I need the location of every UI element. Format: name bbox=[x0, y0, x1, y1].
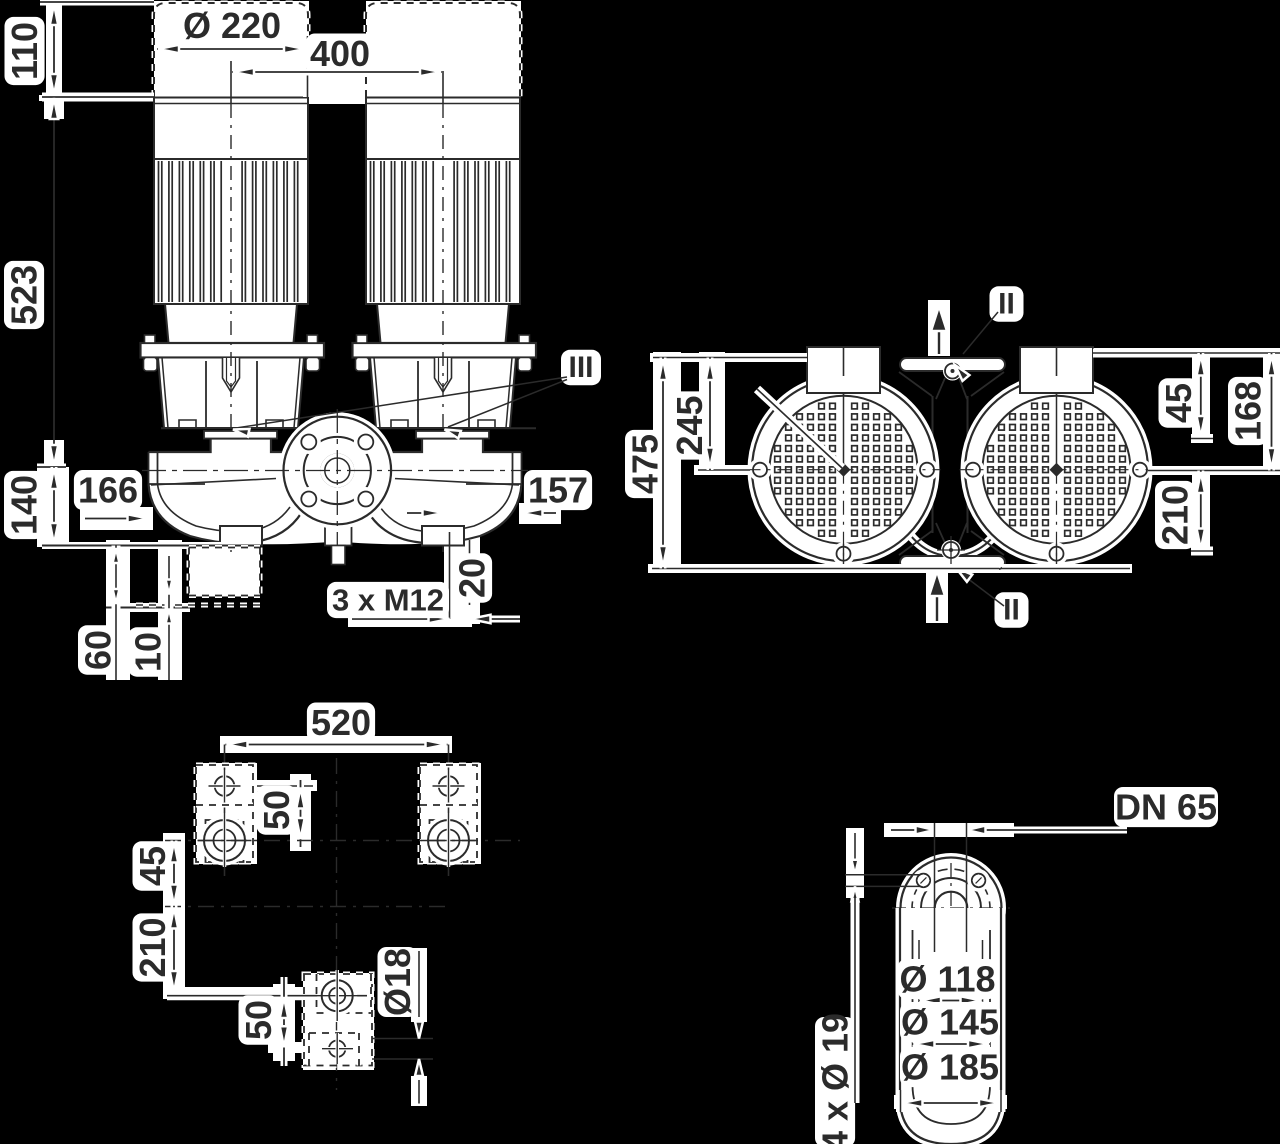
svg-text:140: 140 bbox=[4, 475, 45, 535]
svg-text:20: 20 bbox=[452, 558, 493, 598]
svg-text:Ø18: Ø18 bbox=[377, 948, 418, 1016]
svg-text:475: 475 bbox=[625, 434, 666, 494]
svg-text:Ø 118: Ø 118 bbox=[899, 959, 995, 1000]
svg-text:II: II bbox=[1003, 594, 1020, 627]
svg-text:45: 45 bbox=[1158, 383, 1199, 423]
svg-text:DN 65: DN 65 bbox=[1115, 787, 1217, 828]
svg-text:520: 520 bbox=[311, 702, 371, 743]
svg-text:4 x Ø 19: 4 x Ø 19 bbox=[815, 1013, 856, 1144]
svg-text:166: 166 bbox=[78, 470, 138, 511]
svg-text:III: III bbox=[568, 351, 593, 384]
svg-text:168: 168 bbox=[1228, 381, 1269, 441]
svg-text:10: 10 bbox=[128, 632, 169, 672]
svg-text:Ø 145: Ø 145 bbox=[901, 1002, 999, 1043]
svg-text:210: 210 bbox=[132, 917, 173, 977]
svg-text:210: 210 bbox=[1155, 485, 1196, 545]
svg-text:Ø 185: Ø 185 bbox=[901, 1047, 999, 1088]
svg-text:3 x M12: 3 x M12 bbox=[332, 583, 444, 618]
svg-text:157: 157 bbox=[528, 470, 588, 511]
svg-text:400: 400 bbox=[310, 33, 370, 74]
svg-text:Ø 220: Ø 220 bbox=[183, 5, 281, 46]
svg-text:523: 523 bbox=[4, 265, 45, 325]
svg-text:245: 245 bbox=[669, 395, 710, 455]
svg-text:50: 50 bbox=[256, 790, 297, 830]
svg-text:50: 50 bbox=[238, 1000, 279, 1040]
svg-text:110: 110 bbox=[4, 22, 45, 80]
svg-text:II: II bbox=[998, 288, 1015, 321]
svg-text:45: 45 bbox=[132, 846, 173, 886]
